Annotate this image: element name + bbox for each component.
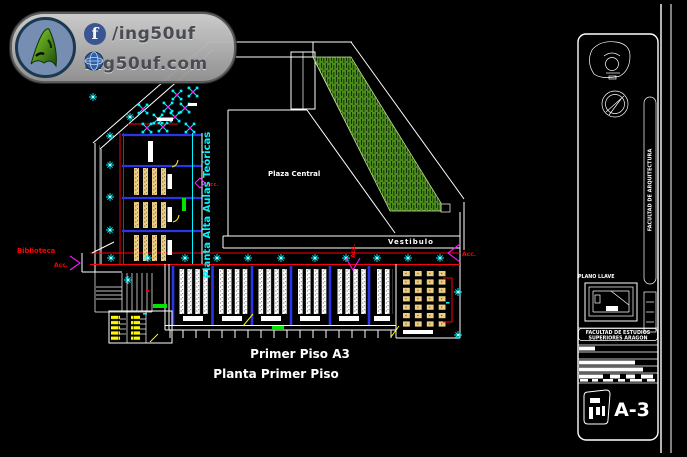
desk-rows [134,168,166,195]
whiteboard [148,141,153,162]
library-entrance-walls [82,242,122,272]
dimension-ticks [169,331,396,340]
door-swing [150,334,158,342]
access-arrow-left [70,256,80,270]
project-info: FACULTAD DE ESTUDIOS SUPERIORES ARAGON [578,328,658,383]
floor-plan: Biblioteca Acc. Acc. Acc. Acc. Plaza Cen… [17,42,476,381]
title-block: FACULTAD DE ARQUITECTURA PLANO LLAVE FAC… [578,4,671,453]
facebook-icon: f [84,23,106,45]
staircase [95,272,152,312]
toilet-fixtures [111,315,120,341]
circle-emblem-icon [602,91,628,117]
desk-rows [337,269,367,314]
green-roof-strip [313,57,441,211]
left-classroom-block [122,133,202,264]
side-strip: FACULTAD DE ARQUITECTURA [644,97,656,332]
desk-rows [219,269,249,314]
plan-caption-line2: Planta Primer Piso [213,367,338,381]
aulas-wing-label: Planta Alta Aulas Teóricas [201,132,213,278]
desk-grid [403,270,447,327]
access-mid-label: Acc. [350,244,357,258]
brand-logo-icon [15,17,76,78]
access-left-label: Acc. [54,262,68,269]
sheet-number: A-3 [614,399,650,421]
door-swing [173,215,179,222]
side-strip-label: FACULTAD DE ARQUITECTURA [648,149,654,232]
desk-rows [298,269,328,314]
desk-rows [134,202,166,228]
sheet-logo-icon [584,390,610,424]
desk-rows [374,269,393,314]
green-marker [153,304,167,308]
vestibulo-label: Vestibulo [388,238,434,246]
biblioteca-label: Biblioteca [17,247,56,255]
project-title-line1: FACULTAD DE ESTUDIOS [586,330,651,336]
cad-viewer-screen: Biblioteca Acc. Acc. Acc. Acc. Plaza Cen… [0,0,687,457]
access-right-label: Acc. [462,251,476,258]
toilet-fixtures [131,315,140,341]
project-title-line2: SUPERIORES ARAGON [589,336,648,342]
green-marker [182,198,186,211]
university-seal-icon [589,42,630,79]
key-plan: PLANO LLAVE [578,274,637,321]
green-marker [272,326,284,330]
plaza-central-label: Plaza Central [268,170,320,178]
lab-room [396,264,460,338]
plan-caption-line1: Primer Piso A3 [250,347,350,361]
desk-rows [134,235,166,261]
key-plan-label: PLANO LLAVE [578,274,615,280]
desk-rows [259,269,289,314]
facebook-handle: /ing50uf [112,24,195,44]
cafeteria-tables [138,87,199,134]
watermark: f /ing50uf ing50uf.com [10,12,236,83]
globe-icon [84,51,104,71]
